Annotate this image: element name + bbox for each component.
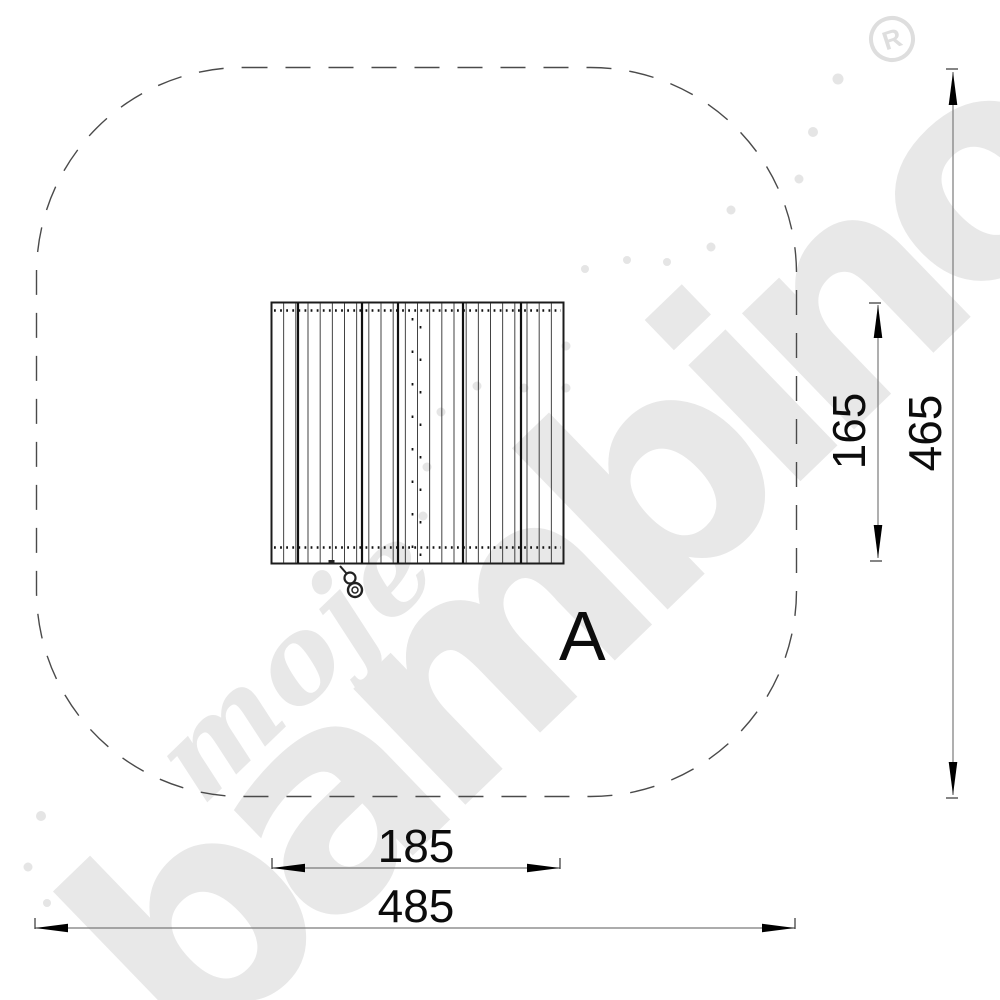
dimension-label-485: 485 [336,883,496,929]
dimension-label-185: 185 [336,823,496,869]
panel-post-lines [298,303,521,563]
item-letter-label: A [559,601,606,671]
arrow-right-icon [762,924,795,933]
arrow-left-icon [35,924,68,933]
plank-seam-lines [284,303,552,563]
safety-zone-outline [37,68,797,797]
dimension-label-165: 165 [826,351,872,511]
arrow-down-icon [949,762,958,795]
arrow-up-icon [874,305,883,338]
chain-anchor-detail [329,560,363,597]
arrow-up-icon [949,72,958,105]
arrow-right-icon [527,864,560,873]
equipment-panel [272,303,564,598]
dimension-label-465: 465 [902,353,948,513]
plan-drawing-canvas: moje bambino R [0,0,1000,1000]
arrow-down-icon [874,525,883,558]
arrow-left-icon [272,864,305,873]
